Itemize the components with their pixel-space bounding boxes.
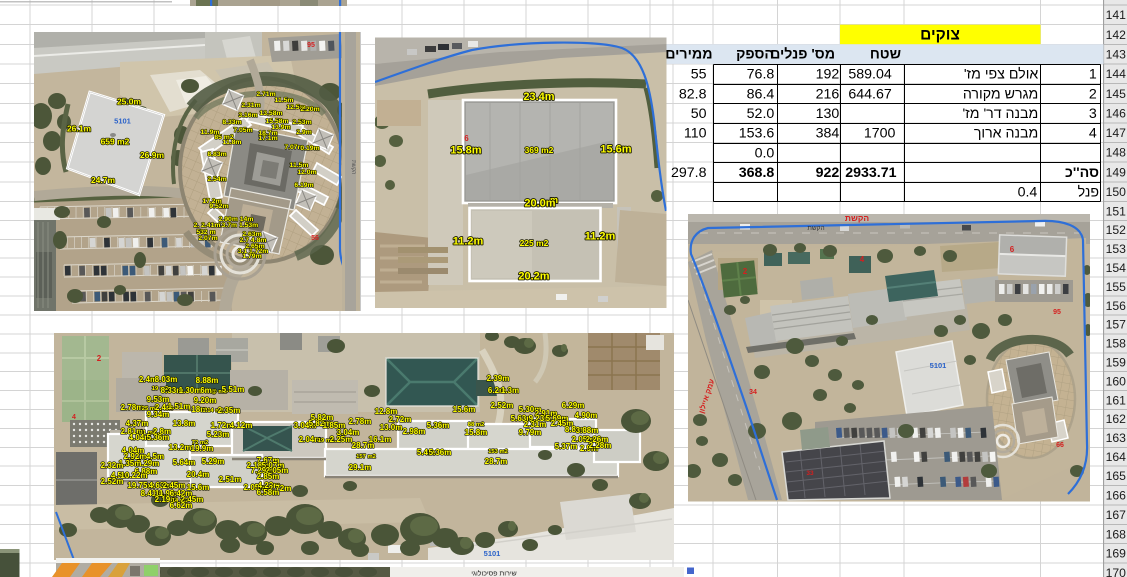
svg-text:644.67: 644.67 [848, 86, 892, 102]
svg-text:2.54m: 2.54m [207, 176, 226, 183]
svg-text:130: 130 [816, 106, 840, 122]
svg-text:170: 170 [1106, 566, 1127, 577]
svg-text:1.30m: 1.30m [179, 386, 202, 395]
svg-text:2.35m: 2.35m [218, 406, 241, 415]
svg-text:12.0m: 12.0m [297, 169, 316, 176]
svg-text:76.8: 76.8 [747, 67, 775, 83]
svg-text:159: 159 [1106, 356, 1127, 370]
svg-text:8.88m: 8.88m [196, 376, 219, 385]
svg-text:2.78m: 2.78m [349, 417, 372, 426]
svg-text:8.03m: 8.03m [155, 375, 178, 384]
svg-text:146: 146 [1106, 106, 1127, 120]
svg-text:ממירים: ממירים [665, 47, 712, 63]
svg-text:6.58m: 6.58m [257, 488, 280, 497]
svg-text:4: 4 [72, 414, 76, 421]
svg-text:169: 169 [1106, 547, 1127, 561]
svg-text:23.4m: 23.4m [523, 91, 554, 103]
svg-text:0.4: 0.4 [1018, 185, 1038, 201]
svg-text:13.8m: 13.8m [173, 419, 196, 428]
svg-text:2.31m: 2.31m [241, 102, 260, 109]
svg-text:297.8: 297.8 [671, 165, 707, 181]
svg-text:20.2m: 20.2m [518, 271, 549, 283]
svg-text:8.83m: 8.83m [207, 151, 226, 158]
svg-text:שירות פסיכולוגי: שירות פסיכולוגי [471, 570, 517, 577]
svg-text:6.19m: 6.19m [294, 182, 313, 189]
svg-text:0.0: 0.0 [755, 145, 775, 161]
svg-text:922: 922 [816, 165, 840, 181]
svg-text:368.8: 368.8 [739, 165, 775, 181]
svg-text:66: 66 [1056, 442, 1064, 449]
svg-text:20.0m: 20.0m [524, 198, 555, 210]
svg-text:2.32m: 2.32m [101, 461, 124, 470]
svg-text:צוקים: צוקים [920, 26, 960, 43]
svg-text:153 m2: 153 m2 [488, 449, 508, 455]
svg-text:2.78m: 2.78m [121, 403, 144, 412]
svg-text:2.98m: 2.98m [403, 427, 426, 436]
svg-text:4.12m: 4.12m [230, 421, 253, 430]
svg-text:4.90m: 4.90m [575, 411, 598, 420]
svg-text:5101: 5101 [114, 117, 131, 126]
svg-text:95: 95 [307, 42, 315, 49]
svg-text:144: 144 [1106, 67, 1127, 81]
svg-text:11.5m: 11.5m [275, 97, 294, 104]
svg-text:15.6m: 15.6m [187, 483, 210, 492]
svg-text:15.8m: 15.8m [465, 428, 488, 437]
svg-text:141: 141 [1106, 8, 1127, 22]
svg-text:הקשת: הקשת [845, 213, 870, 223]
svg-text:אולם צפי מז'‏: אולם צפי מז'‏ [964, 67, 1039, 83]
svg-text:1: 1 [1089, 67, 1097, 83]
svg-text:5101: 5101 [484, 549, 501, 558]
svg-text:192: 192 [816, 67, 840, 83]
svg-text:5.36m: 5.36m [147, 433, 170, 442]
svg-text:2: 2 [743, 267, 748, 276]
svg-text:0.19m: 0.19m [300, 145, 319, 152]
svg-text:659 m2: 659 m2 [101, 137, 130, 147]
svg-text:167: 167 [1106, 508, 1127, 522]
svg-text:33: 33 [806, 470, 814, 477]
svg-text:166: 166 [1106, 489, 1127, 503]
svg-text:149: 149 [1106, 165, 1127, 179]
svg-text:5.36m: 5.36m [429, 448, 452, 457]
svg-text:1.79m: 1.79m [242, 253, 261, 260]
svg-text:155: 155 [1106, 280, 1127, 294]
svg-text:216: 216 [816, 86, 840, 102]
svg-text:1700: 1700 [864, 126, 896, 142]
svg-text:152: 152 [1106, 223, 1127, 237]
svg-text:160: 160 [1106, 374, 1127, 388]
svg-text:9.52m: 9.52m [209, 203, 228, 210]
svg-text:150: 150 [1106, 185, 1127, 199]
svg-text:13.2m: 13.2m [169, 443, 192, 452]
svg-text:5.23m: 5.23m [207, 430, 230, 439]
svg-text:11.2m: 11.2m [585, 231, 616, 243]
svg-text:28.7m: 28.7m [352, 441, 375, 450]
svg-text:8.33m: 8.33m [222, 119, 241, 126]
svg-text:4: 4 [860, 255, 865, 264]
svg-text:2. 2.41m: 2. 2.41m [194, 222, 221, 229]
svg-text:384: 384 [816, 126, 840, 142]
svg-text:פנל: פנל [1078, 185, 1099, 201]
svg-text:225 m2: 225 m2 [520, 238, 549, 248]
svg-text:הקשת: הקשת [350, 160, 356, 175]
svg-text:151: 151 [1106, 204, 1127, 218]
svg-text:50: 50 [691, 106, 707, 122]
svg-text:589.04: 589.04 [848, 67, 892, 83]
svg-text:85 m2: 85 m2 [214, 134, 233, 141]
svg-text:מס' פנלים‏: מס' פנלים‏ [770, 47, 835, 63]
svg-text:מבנה דר'‏ מז'‏: מבנה דר'‏ מז'‏ [962, 106, 1038, 122]
svg-text:162: 162 [1106, 412, 1127, 426]
svg-text:2: 2 [97, 354, 102, 363]
svg-text:2.39m: 2.39m [487, 374, 510, 383]
svg-text:158: 158 [1106, 337, 1127, 351]
svg-text:2.20m: 2.20m [300, 106, 319, 113]
svg-text:2.31m: 2.31m [524, 420, 547, 429]
svg-text:168: 168 [1106, 527, 1127, 541]
svg-text:מגרש מקורה: מגרש מקורה [963, 86, 1038, 102]
svg-text:2.07m: 2.07m [198, 235, 217, 242]
svg-text:9.79m: 9.79m [519, 428, 542, 437]
svg-text:7.05m: 7.05m [233, 127, 252, 134]
svg-text:6: 6 [464, 134, 469, 143]
svg-text:4: 4 [1089, 126, 1097, 142]
svg-text:2.51m: 2.51m [219, 475, 242, 484]
svg-text:15.8m: 15.8m [450, 145, 481, 157]
svg-text:29.1m: 29.1m [349, 463, 372, 472]
svg-text:13.7m 1.53m: 13.7m 1.53m [218, 222, 258, 229]
svg-text:מבנה ארוך: מבנה ארוך [974, 126, 1038, 142]
svg-text:148: 148 [1106, 146, 1127, 160]
svg-text:5.36m: 5.36m [427, 421, 450, 430]
svg-text:86.4: 86.4 [747, 86, 775, 102]
svg-text:82.8: 82.8 [679, 86, 707, 102]
svg-text:52.0: 52.0 [747, 106, 775, 122]
svg-text:24.7m: 24.7m [91, 175, 116, 185]
svg-text:2.85m: 2.85m [257, 472, 280, 481]
svg-text:6: 6 [1010, 245, 1015, 254]
svg-text:הקשת: הקשת [807, 225, 824, 232]
svg-text:2: 2 [1089, 86, 1097, 102]
svg-text:55: 55 [691, 67, 707, 83]
svg-text:143: 143 [1106, 48, 1127, 62]
svg-text:9.34m: 9.34m [147, 410, 170, 419]
svg-text:157 m2: 157 m2 [356, 454, 376, 460]
svg-text:11.2m: 11.2m [453, 236, 484, 248]
svg-text:17.1m: 17.1m [258, 135, 277, 142]
svg-text:20.4m: 20.4m [187, 470, 210, 479]
svg-text:154: 154 [1106, 261, 1127, 275]
svg-text:2.52m: 2.52m [101, 477, 124, 486]
svg-text:25.0m: 25.0m [117, 97, 142, 107]
svg-text:11.5m: 11.5m [290, 162, 309, 169]
svg-text:שטח: שטח [870, 47, 901, 63]
svg-text:6.29m: 6.29m [562, 401, 585, 410]
svg-text:26.1m: 26.1m [67, 124, 92, 134]
svg-text:5.82m: 5.82m [311, 413, 334, 422]
svg-text:369 m2: 369 m2 [525, 145, 554, 155]
svg-text:2933.71: 2933.71 [845, 165, 896, 181]
svg-text:5.64m: 5.64m [173, 458, 196, 467]
svg-text:5.37m: 5.37m [555, 442, 578, 451]
svg-text:2.25m: 2.25m [330, 435, 353, 444]
svg-text:13.58m: 13.58m [259, 110, 282, 117]
svg-text:6m: 6m [200, 386, 212, 395]
svg-text:5.51m: 5.51m [222, 385, 245, 394]
svg-text:6.62m: 6.62m [170, 501, 193, 510]
svg-text:145: 145 [1106, 87, 1127, 101]
svg-text:2.53m: 2.53m [292, 119, 311, 126]
svg-text:2.71m: 2.71m [256, 91, 275, 98]
svg-text:163: 163 [1106, 431, 1127, 445]
svg-text:1.51m: 1.51m [168, 402, 191, 411]
svg-text:5.29m: 5.29m [202, 457, 225, 466]
svg-text:2.52m: 2.52m [491, 401, 514, 410]
svg-text:15.6m: 15.6m [600, 144, 631, 156]
svg-text:147: 147 [1106, 126, 1127, 140]
svg-text:10.22m: 10.22m [120, 471, 147, 480]
svg-text:156: 156 [1106, 299, 1127, 313]
svg-text:5101: 5101 [930, 361, 947, 370]
svg-text:95: 95 [1053, 309, 1061, 316]
svg-text:34: 34 [749, 389, 757, 396]
svg-text:15.6m: 15.6m [453, 405, 476, 414]
svg-text:153: 153 [1106, 242, 1127, 256]
svg-text:19.9m: 19.9m [191, 444, 214, 453]
svg-text:142: 142 [1106, 28, 1127, 42]
svg-text:161: 161 [1106, 393, 1127, 407]
svg-text:2.28m: 2.28m [589, 441, 612, 450]
svg-text:2.9m: 2.9m [296, 129, 312, 136]
svg-text:סה''כ: סה''כ [1065, 165, 1099, 181]
svg-text:3.16m: 3.16m [238, 112, 257, 119]
svg-text:13.0m: 13.0m [380, 423, 403, 432]
svg-text:1.3m: 1.3m [501, 386, 519, 395]
svg-text:28.7m: 28.7m [485, 457, 508, 466]
svg-text:157: 157 [1106, 318, 1127, 332]
svg-text:153.6: 153.6 [739, 126, 775, 142]
svg-text:3: 3 [1089, 106, 1097, 122]
svg-text:9.20m: 9.20m [194, 396, 217, 405]
svg-text:110: 110 [684, 126, 707, 142]
svg-text:56: 56 [311, 235, 319, 242]
svg-text:הספק: הספק [736, 47, 774, 63]
svg-text:3.88m: 3.88m [576, 426, 599, 435]
svg-text:164: 164 [1106, 450, 1127, 464]
svg-text:165: 165 [1106, 469, 1127, 483]
svg-text:26.9m: 26.9m [140, 150, 165, 160]
